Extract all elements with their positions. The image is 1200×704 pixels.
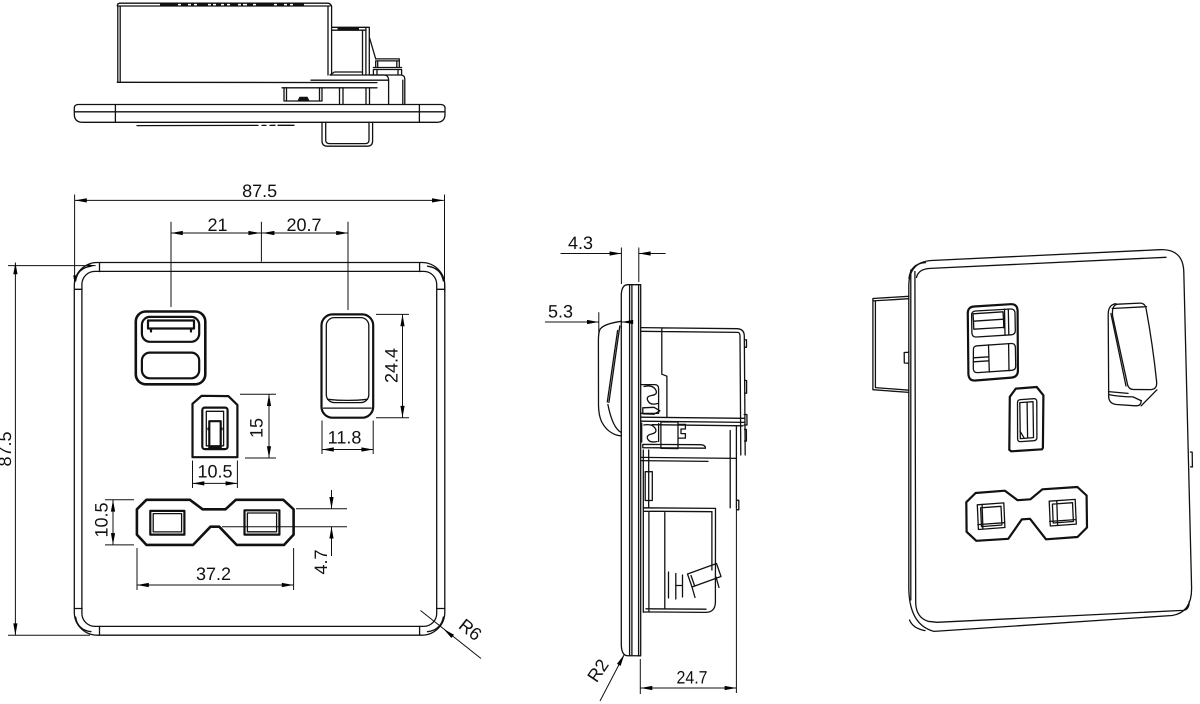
svg-text:21: 21 <box>207 215 227 235</box>
svg-text:10.5: 10.5 <box>92 502 112 537</box>
svg-text:24.4: 24.4 <box>382 348 402 383</box>
svg-text:87.5: 87.5 <box>0 431 15 466</box>
svg-text:15: 15 <box>247 418 267 438</box>
svg-text:10.5: 10.5 <box>197 462 232 482</box>
svg-text:20.7: 20.7 <box>286 215 321 235</box>
svg-text:4.7: 4.7 <box>311 549 331 574</box>
svg-text:R2: R2 <box>583 656 612 686</box>
svg-text:4.3: 4.3 <box>568 233 593 253</box>
svg-text:5.3: 5.3 <box>548 302 573 322</box>
svg-text:87.5: 87.5 <box>242 181 277 201</box>
svg-text:R6: R6 <box>455 615 485 645</box>
svg-text:37.2: 37.2 <box>196 564 231 584</box>
svg-text:11.8: 11.8 <box>328 428 362 448</box>
svg-text:24.7: 24.7 <box>677 668 708 688</box>
